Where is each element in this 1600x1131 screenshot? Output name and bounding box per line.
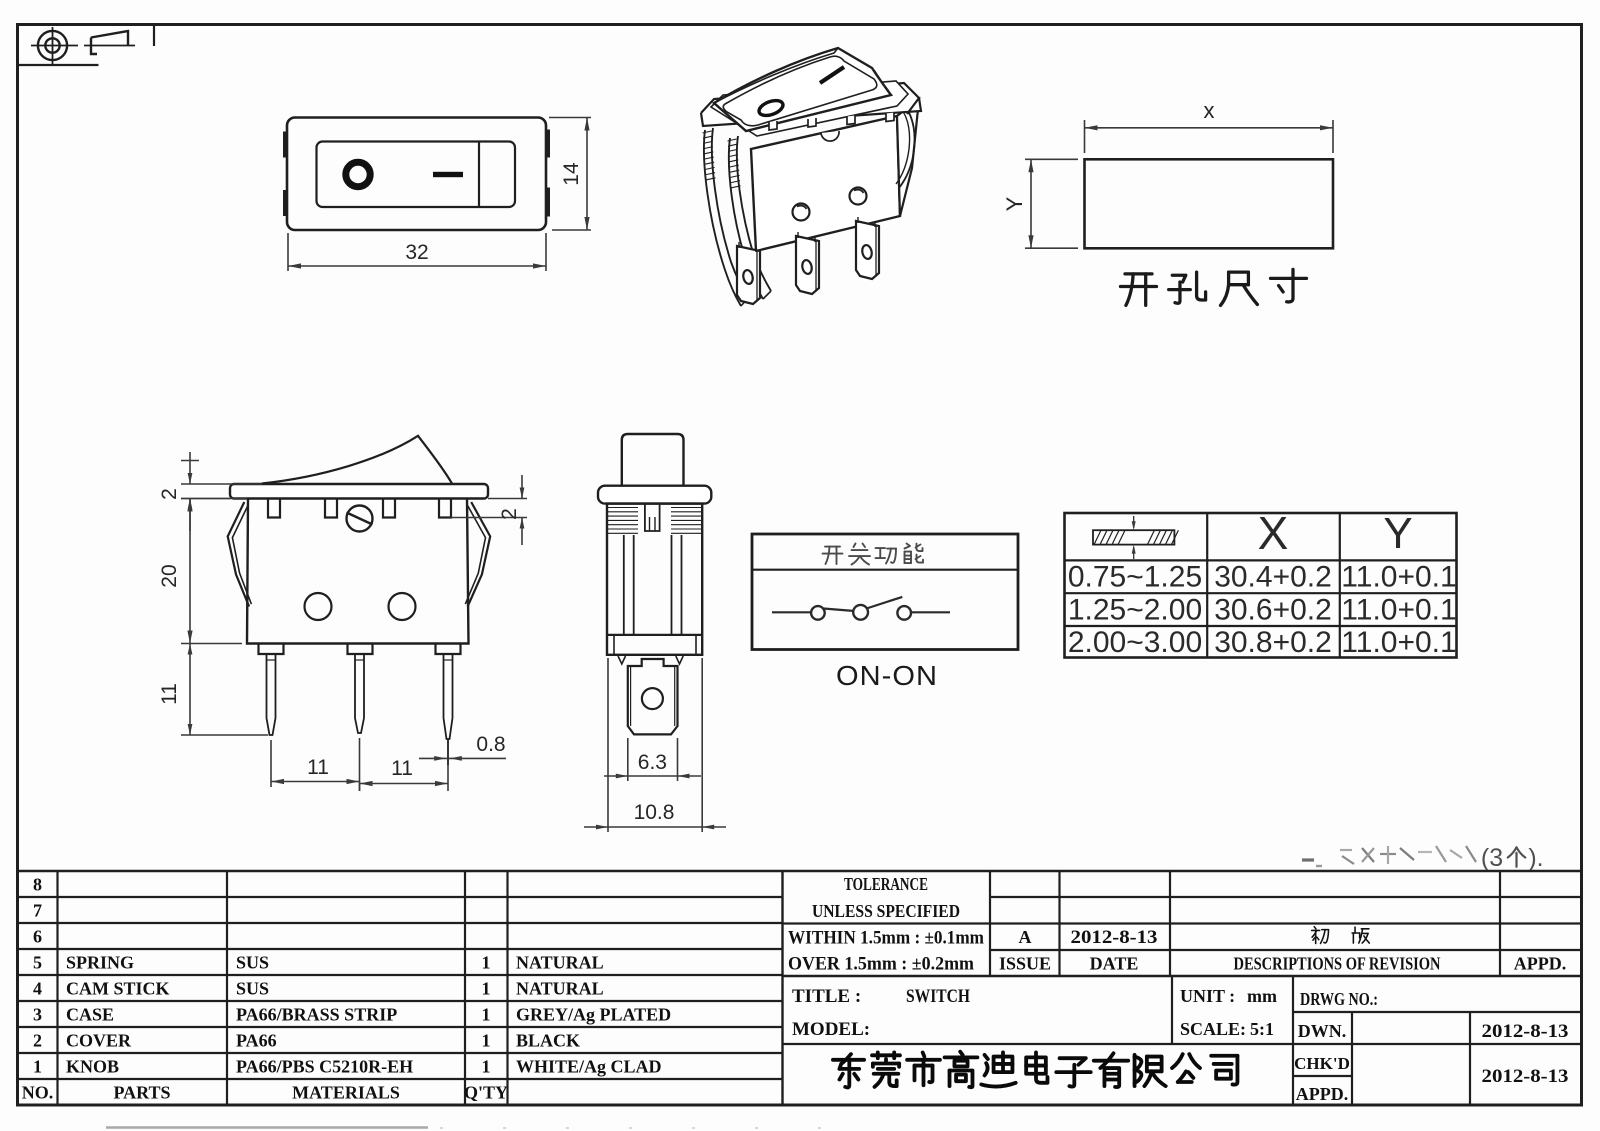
- svg-text:UNLESS SPECIFIED: UNLESS SPECIFIED: [812, 901, 960, 921]
- svg-text:PA66/PBS C5210R-EH: PA66/PBS C5210R-EH: [236, 1057, 413, 1077]
- svg-text:1: 1: [482, 1057, 491, 1077]
- svg-text:5: 5: [33, 953, 42, 973]
- svg-text:ON-ON: ON-ON: [836, 660, 938, 691]
- svg-text:SUS: SUS: [236, 979, 269, 999]
- svg-text:11.0+0.1: 11.0+0.1: [1341, 626, 1456, 659]
- svg-text:SPRING: SPRING: [66, 953, 134, 973]
- svg-text:NATURAL: NATURAL: [516, 953, 604, 973]
- svg-text:WHITE/Ag CLAD: WHITE/Ag CLAD: [516, 1057, 662, 1077]
- svg-text:mm: mm: [1247, 986, 1277, 1006]
- svg-text:X: X: [1258, 507, 1289, 559]
- svg-text:1: 1: [33, 1057, 42, 1077]
- svg-text:DWN.: DWN.: [1298, 1021, 1347, 1041]
- svg-text:30.6+0.2: 30.6+0.2: [1214, 593, 1332, 626]
- svg-text:CHK'D: CHK'D: [1294, 1054, 1350, 1073]
- svg-text:2012-8-13: 2012-8-13: [1482, 1066, 1569, 1087]
- svg-text:0.8: 0.8: [476, 733, 505, 756]
- svg-text:UNIT :: UNIT :: [1180, 986, 1235, 1006]
- svg-text:PARTS: PARTS: [113, 1083, 170, 1103]
- svg-text:).: ).: [1528, 844, 1543, 872]
- svg-text:1: 1: [482, 953, 491, 973]
- svg-text:PA66/BRASS STRIP: PA66/BRASS STRIP: [236, 1005, 397, 1025]
- svg-text:2.00~3.00: 2.00~3.00: [1068, 626, 1202, 659]
- svg-text:1: 1: [482, 1031, 491, 1051]
- svg-text:APPD.: APPD.: [1514, 954, 1567, 974]
- svg-text:CASE: CASE: [66, 1005, 114, 1025]
- svg-text:1: 1: [482, 979, 491, 999]
- svg-text:2: 2: [33, 1031, 42, 1051]
- svg-text:Y: Y: [1002, 196, 1027, 211]
- svg-text:SCALE:: SCALE:: [1180, 1019, 1246, 1039]
- svg-text:WITHIN 1.5mm : ±0.1mm: WITHIN 1.5mm : ±0.1mm: [788, 929, 985, 949]
- svg-text:BLACK: BLACK: [516, 1031, 580, 1051]
- svg-text:11: 11: [307, 756, 329, 779]
- svg-text:3: 3: [33, 1005, 42, 1025]
- svg-text:11: 11: [158, 683, 181, 705]
- svg-text:COVER: COVER: [66, 1031, 132, 1051]
- svg-text:14: 14: [560, 162, 583, 186]
- svg-text:DESCRIPTIONS OF REVISION: DESCRIPTIONS OF REVISION: [1234, 954, 1441, 974]
- svg-text:TOLERANCE: TOLERANCE: [844, 874, 928, 894]
- svg-text:30.4+0.2: 30.4+0.2: [1214, 561, 1332, 594]
- svg-text:ISSUE: ISSUE: [999, 954, 1051, 974]
- svg-text:2012-8-13: 2012-8-13: [1071, 927, 1158, 948]
- svg-text:A: A: [1019, 927, 1032, 947]
- svg-text:5:1: 5:1: [1250, 1019, 1274, 1039]
- svg-text:7: 7: [33, 901, 42, 921]
- svg-text:6: 6: [33, 927, 42, 947]
- svg-text:30.8+0.2: 30.8+0.2: [1214, 626, 1332, 659]
- svg-text:8: 8: [33, 875, 42, 895]
- svg-text:20: 20: [158, 564, 181, 587]
- svg-text:0.75~1.25: 0.75~1.25: [1068, 561, 1202, 594]
- svg-text:DATE: DATE: [1090, 954, 1139, 974]
- svg-text:Q'TY: Q'TY: [464, 1083, 508, 1103]
- svg-text:6.3: 6.3: [638, 751, 667, 774]
- svg-text:11.0+0.1: 11.0+0.1: [1341, 593, 1456, 626]
- svg-text:x: x: [1204, 98, 1215, 123]
- svg-text:2012-8-13: 2012-8-13: [1482, 1021, 1569, 1042]
- svg-text:NATURAL: NATURAL: [516, 979, 604, 999]
- svg-text:NO.: NO.: [22, 1083, 54, 1103]
- svg-text:Y: Y: [1383, 509, 1412, 558]
- svg-text:PA66: PA66: [236, 1031, 277, 1051]
- svg-text:CAM STICK: CAM STICK: [66, 979, 170, 999]
- svg-text:1.25~2.00: 1.25~2.00: [1068, 593, 1202, 626]
- svg-text:MODEL:: MODEL:: [792, 1019, 870, 1040]
- svg-text:KNOB: KNOB: [66, 1057, 119, 1077]
- svg-text:2: 2: [498, 508, 521, 520]
- svg-text:4: 4: [33, 979, 42, 999]
- svg-text:MATERIALS: MATERIALS: [292, 1083, 400, 1103]
- svg-text:SWITCH: SWITCH: [906, 986, 970, 1007]
- svg-text:APPD.: APPD.: [1296, 1084, 1349, 1104]
- svg-text:DRWG NO.:: DRWG NO.:: [1300, 989, 1378, 1009]
- svg-text:11: 11: [391, 757, 413, 780]
- svg-text:1: 1: [482, 1005, 491, 1025]
- svg-text:(3: (3: [1481, 844, 1503, 872]
- svg-text:SUS: SUS: [236, 953, 269, 973]
- svg-text:10.8: 10.8: [634, 801, 675, 824]
- svg-text:2: 2: [158, 488, 181, 500]
- svg-text:32: 32: [405, 241, 428, 264]
- svg-text:OVER 1.5mm : ±0.2mm: OVER 1.5mm : ±0.2mm: [788, 955, 975, 975]
- svg-text:GREY/Ag PLATED: GREY/Ag PLATED: [516, 1005, 671, 1025]
- svg-text:11.0+0.1: 11.0+0.1: [1341, 561, 1456, 594]
- svg-text:TITLE :: TITLE :: [792, 986, 861, 1007]
